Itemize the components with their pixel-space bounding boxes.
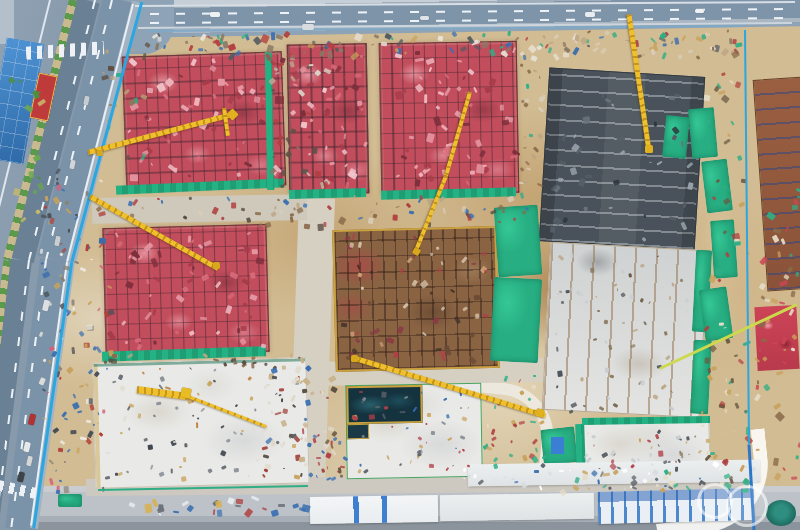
materials-north-strip (572, 47, 580, 56)
materials-mid-row (483, 208, 487, 211)
formwork-mottle (394, 91, 402, 100)
materials-east-inner (724, 409, 727, 413)
formwork-mottle (241, 326, 247, 331)
materials-mid-row (354, 196, 356, 199)
slab-equipment (594, 444, 595, 446)
materials-east-outer (764, 384, 771, 391)
formwork-mottle (343, 133, 346, 139)
formwork-mottle (393, 352, 398, 358)
materials-north-strip (381, 42, 388, 47)
materials-east-outer (774, 402, 782, 409)
slab-equipment (155, 401, 161, 405)
materials-east-outer (776, 372, 784, 376)
materials-gap-ab (314, 171, 321, 177)
materials-north-strip (531, 55, 539, 62)
materials-west-strip (58, 377, 61, 380)
materials-mid-row (375, 202, 377, 205)
materials-north-strip (227, 43, 236, 52)
materials-west-strip (78, 384, 84, 388)
red-formwork-block-north-1 (287, 43, 370, 194)
materials-north-strip (508, 31, 511, 36)
slab-equipment (254, 408, 256, 411)
formwork-mottle (357, 242, 361, 248)
formwork-mottle (476, 314, 480, 319)
materials-west-strip (64, 417, 68, 420)
materials-mid-row (409, 210, 415, 214)
materials-west-strip (71, 311, 76, 316)
curve-road-clutter (529, 421, 535, 423)
parked-trucks (217, 509, 223, 517)
formwork-mottle (237, 173, 241, 177)
formwork-mottle (213, 273, 216, 276)
materials-mid-row (442, 208, 446, 215)
slab-equipment (658, 451, 663, 457)
materials-west-strip (79, 437, 86, 441)
materials-west-strip (95, 346, 102, 353)
materials-gap-cd (523, 102, 529, 107)
materials-west-strip (72, 402, 80, 410)
materials-west-cluster (333, 437, 338, 442)
materials-ne-dirt (727, 30, 730, 34)
slab-equipment (172, 441, 175, 444)
materials-north-strip (674, 37, 680, 45)
slab-equipment (571, 288, 573, 292)
south-road-clutter (534, 470, 539, 473)
materials-ne-dirt (594, 42, 600, 46)
materials-gap-cd (529, 134, 534, 138)
green-tarp (490, 277, 542, 363)
slab-equipment (428, 464, 434, 469)
materials-west-strip (48, 360, 50, 364)
slab-equipment (684, 441, 687, 443)
formwork-mottle (436, 348, 442, 352)
materials-ne-dirt (543, 35, 547, 40)
materials-east-inner (737, 155, 743, 161)
slab-equipment (170, 468, 172, 473)
crane-turret (97, 150, 103, 156)
materials-mid-row (419, 195, 423, 200)
site-fence-east (744, 30, 750, 444)
formwork-mottle (238, 248, 244, 251)
materials-mid-row (255, 212, 261, 215)
south-road-clutter (648, 472, 650, 475)
materials-west-strip (87, 300, 93, 305)
slab-equipment (359, 391, 364, 393)
materials-ne-dirt (677, 55, 682, 61)
site-edge-west (108, 66, 115, 71)
materials-north-strip (198, 48, 203, 51)
materials-east-inner (719, 322, 724, 325)
materials-gap-cd (519, 167, 524, 172)
materials-ne-dirt (611, 32, 617, 38)
materials-west-cluster (301, 388, 307, 393)
materials-east-inner (712, 367, 717, 371)
slab-equipment (400, 411, 406, 413)
materials-east-inner (734, 81, 741, 88)
materials-west-strip (75, 214, 79, 216)
materials-west-strip (67, 449, 71, 453)
materials-east-inner (738, 202, 745, 208)
materials-mid-row (231, 202, 236, 208)
materials-east-outer (796, 455, 800, 460)
site-edge-west (106, 49, 109, 53)
materials-gap-cd (522, 135, 526, 139)
materials-east-outer (772, 342, 778, 344)
materials-gap-cd (520, 63, 524, 67)
materials-north-strip (185, 41, 189, 45)
materials-west-cluster (281, 398, 283, 402)
materials-east-outer (782, 467, 786, 472)
materials-west-strip (97, 422, 98, 424)
parked-trucks (212, 509, 215, 515)
materials-west-strip (80, 267, 87, 272)
slab-equipment (184, 443, 187, 447)
materials-mid-row (368, 217, 374, 223)
roof-mottle (557, 178, 563, 183)
materials-south-mid (302, 428, 305, 434)
formwork-mottle (249, 316, 252, 319)
materials-ne-dirt (642, 53, 646, 56)
materials-west-strip (79, 331, 86, 338)
materials-east-inner (723, 139, 730, 145)
materials-west-strip (58, 447, 63, 452)
slab-equipment (182, 457, 186, 462)
materials-east-outer (791, 477, 797, 480)
formwork-mottle (237, 147, 239, 151)
materials-east-inner (730, 120, 734, 125)
materials-gap-cd (537, 133, 543, 139)
car (210, 12, 220, 17)
materials-north-strip (586, 45, 590, 48)
materials-east-inner (718, 278, 722, 282)
site-edge-west (110, 76, 115, 81)
green-tarp (58, 494, 82, 507)
materials-east-inner (738, 359, 744, 365)
materials-west-strip (71, 347, 75, 354)
materials-gap-ab (308, 64, 314, 67)
materials-east-inner (721, 72, 726, 76)
formwork-mottle (361, 286, 364, 289)
materials-north-strip (734, 42, 742, 47)
slab-equipment (570, 253, 574, 259)
materials-north-strip (437, 35, 443, 41)
materials-east-outer (770, 298, 778, 304)
materials-gap-cd (538, 107, 544, 113)
materials-west-strip (60, 440, 66, 445)
formwork-mottle (275, 95, 284, 103)
slab-equipment (148, 444, 153, 450)
materials-north-strip (189, 45, 194, 52)
formwork-mottle (502, 119, 510, 125)
slab-equipment (556, 347, 559, 352)
foundation-slab-southwest (92, 357, 309, 489)
materials-gap-cd (539, 76, 541, 80)
materials-south-mid (338, 440, 342, 444)
materials-south-mid (327, 467, 329, 470)
materials-west-cluster (270, 410, 273, 414)
south-road-clutter (473, 474, 476, 479)
formwork-mottle (219, 79, 226, 86)
materials-east-inner (728, 80, 733, 85)
materials-west-strip (45, 195, 49, 200)
formwork-mottle (250, 272, 256, 279)
formwork-mottle (146, 87, 153, 92)
materials-west-strip (103, 410, 106, 414)
formwork-mottle (409, 135, 415, 138)
materials-ne-dirt (687, 50, 693, 54)
materials-mid-row (304, 223, 311, 229)
green-tarp (688, 107, 718, 159)
materials-west-strip (61, 411, 67, 418)
materials-gap-cd (541, 94, 545, 98)
materials-north-strip (528, 45, 537, 54)
slab-equipment (580, 377, 583, 381)
crane-turret (351, 355, 358, 362)
materials-ne-dirt (554, 34, 560, 40)
parked-trucks (235, 504, 241, 507)
materials-north-strip (553, 53, 560, 61)
materials-mid-row (264, 222, 271, 228)
materials-ne-dirt (587, 30, 591, 34)
materials-mid-row (393, 214, 399, 220)
materials-west-strip (59, 479, 63, 482)
blue-tarp (551, 437, 564, 454)
materials-west-strip (66, 367, 74, 375)
materials-gap-cd (531, 154, 537, 160)
materials-north-strip (221, 33, 225, 41)
materials-ne-dirt (549, 42, 554, 45)
slab-equipment (604, 367, 609, 373)
materials-mid-row (498, 220, 501, 222)
long-white-building (440, 493, 594, 522)
materials-west-strip (63, 460, 66, 463)
slab-equipment (585, 301, 588, 304)
materials-east-outer (754, 393, 761, 401)
materials-north-strip (260, 34, 270, 44)
south-road-clutter (559, 470, 564, 472)
slab-equipment (233, 467, 238, 472)
roof-mottle (585, 175, 592, 178)
slab-equipment (590, 268, 594, 273)
materials-west-cluster (326, 396, 330, 399)
materials-west-strip (73, 307, 76, 311)
materials-east-inner (705, 119, 710, 125)
slab-equipment (685, 298, 689, 303)
materials-east-outer (775, 412, 785, 422)
materials-west-cluster (271, 440, 276, 446)
materials-south-mid (316, 457, 321, 459)
crane-turret (180, 387, 192, 399)
materials-east-outer (790, 291, 795, 298)
striped-foundation-slab-east (542, 242, 709, 418)
materials-mid-row (339, 216, 347, 225)
materials-south-mid (332, 430, 338, 436)
south-road-clutter (607, 486, 611, 490)
slab-equipment (621, 322, 624, 325)
materials-north-strip (371, 43, 374, 45)
slab-equipment (272, 375, 277, 378)
materials-east-inner (703, 95, 710, 102)
materials-west-strip (87, 324, 93, 330)
materials-west-strip (47, 213, 51, 219)
materials-west-strip (77, 410, 82, 413)
materials-west-strip (71, 299, 74, 305)
materials-west-strip (48, 459, 54, 465)
roof-mottle (582, 116, 590, 124)
materials-north-strip (515, 37, 519, 42)
materials-north-strip (682, 35, 687, 41)
parked-trucks (173, 510, 179, 513)
materials-gap-cd (525, 98, 529, 102)
materials-north-strip (327, 50, 333, 58)
formwork-mottle (130, 174, 138, 181)
materials-east-inner (727, 133, 731, 137)
car (585, 12, 595, 17)
slab-equipment (197, 392, 200, 395)
materials-mid-row (293, 208, 295, 211)
roof-mottle (643, 214, 646, 218)
materials-east-inner (734, 403, 739, 409)
materials-north-strip (157, 37, 161, 42)
crane-turret (213, 262, 220, 269)
materials-gap-cd (532, 146, 538, 153)
materials-mid-row (439, 196, 445, 203)
materials-gap-eh (111, 354, 117, 358)
curve-road-clutter (531, 384, 536, 389)
materials-mid-row (406, 202, 412, 208)
formwork-mottle (424, 94, 428, 103)
materials-south-mid (331, 445, 334, 450)
watermark-circle (726, 485, 768, 527)
materials-east-outer (773, 473, 781, 482)
excavation-pit-small (347, 424, 369, 439)
materials-ne-dirt (661, 52, 666, 59)
truck (302, 24, 314, 30)
parked-trucks (235, 498, 242, 503)
slab-equipment (431, 430, 436, 434)
formwork-mottle (357, 101, 363, 106)
materials-west-strip (55, 469, 57, 471)
formwork-mottle (200, 316, 208, 320)
materials-west-strip (84, 343, 87, 347)
materials-north-strip (283, 31, 290, 39)
materials-west-strip (85, 383, 89, 387)
materials-west-strip (49, 478, 54, 485)
formwork-mottle (500, 105, 504, 111)
materials-west-strip (85, 244, 89, 251)
materials-north-strip (544, 43, 549, 49)
materials-north-strip (271, 32, 276, 40)
materials-north-strip (163, 44, 166, 48)
materials-gap-cd (526, 84, 530, 90)
materials-west-strip (73, 393, 77, 398)
materials-mid-row (372, 213, 377, 218)
materials-ne-dirt (591, 46, 598, 53)
materials-east-outer (764, 299, 769, 302)
materials-ne-dirt (601, 48, 608, 54)
formwork-mottle (470, 171, 475, 175)
materials-ne-dirt (650, 37, 656, 42)
materials-mid-row (507, 196, 514, 203)
formwork-mottle (414, 179, 420, 186)
formwork-mottle (252, 249, 258, 254)
materials-east-outer (756, 385, 759, 390)
slab-equipment (195, 422, 198, 428)
slab-equipment (638, 438, 640, 442)
materials-ne-dirt (695, 55, 700, 60)
materials-gap-cd (520, 192, 524, 198)
formwork-mottle (261, 343, 267, 348)
materials-east-inner (725, 378, 727, 382)
materials-east-outer (758, 282, 766, 290)
materials-gap-cd (533, 69, 537, 72)
formwork-mottle (483, 165, 487, 167)
materials-west-strip (66, 312, 70, 317)
materials-ne-dirt (605, 30, 611, 36)
materials-north-strip (670, 40, 672, 44)
materials-west-strip (90, 259, 93, 261)
slab-equipment (137, 413, 141, 418)
materials-gap-ab (280, 185, 285, 189)
green-tarp (494, 205, 543, 278)
formwork-mottle (188, 105, 193, 109)
materials-east-inner (734, 355, 738, 358)
materials-west-strip (52, 427, 59, 434)
materials-east-inner (705, 357, 711, 363)
green-tarp (710, 219, 738, 279)
roof-mottle (550, 226, 555, 232)
formwork-mottle (415, 51, 420, 55)
parked-trucks (144, 503, 152, 513)
materials-west-strip (96, 307, 100, 311)
formwork-mottle (463, 123, 470, 126)
parked-trucks (278, 504, 285, 507)
materials-east-inner (734, 240, 741, 245)
materials-north-strip (373, 34, 379, 39)
brown-formwork-block-east (753, 77, 800, 292)
formwork-mottle (341, 322, 348, 327)
materials-north-strip (729, 38, 732, 44)
materials-west-strip (70, 429, 77, 434)
materials-west-strip (89, 398, 93, 404)
materials-gap-ab (271, 88, 275, 92)
materials-east-inner (706, 439, 710, 443)
materials-north-strip (663, 43, 667, 46)
materials-mid-row (316, 224, 323, 231)
materials-west-cluster (304, 399, 310, 406)
materials-north-strip (482, 33, 486, 38)
materials-south-mid (303, 437, 307, 442)
materials-ne-dirt (548, 47, 552, 54)
materials-mid-row (358, 217, 363, 221)
materials-east-inner (708, 368, 712, 373)
crane-turret (645, 145, 653, 153)
materials-east-outer (773, 457, 780, 465)
materials-mid-row (396, 206, 400, 209)
slab-equipment (381, 392, 387, 398)
materials-east-outer (779, 301, 785, 304)
materials-west-cluster (330, 386, 338, 393)
roof-mottle (674, 93, 680, 97)
materials-north-strip (451, 31, 457, 37)
materials-north-strip (599, 36, 604, 39)
car (695, 9, 704, 13)
slab-equipment (283, 468, 285, 469)
south-road-clutter (675, 466, 678, 471)
aerial-construction-site-photo (0, 0, 800, 530)
slab-equipment (104, 475, 110, 479)
formwork-mottle (256, 257, 265, 264)
